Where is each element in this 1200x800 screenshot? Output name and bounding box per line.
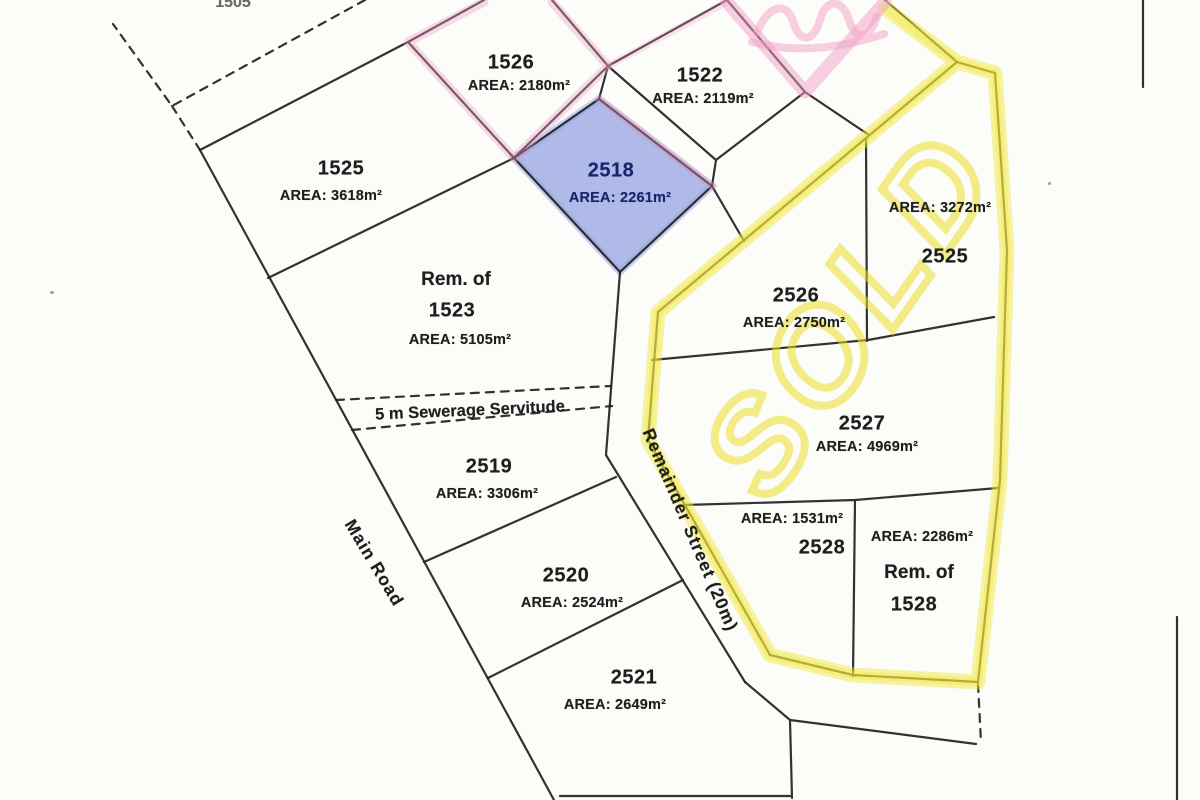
parcel-2527-area: AREA: 4969m² [816,439,918,455]
parcel-2528-area: AREA: 1531m² [741,511,843,527]
parcel-1522-number: 1522 [677,65,724,88]
parcel-1526-area: AREA: 2180m² [468,78,570,94]
parcel-1522-area: AREA: 2119m² [652,91,754,107]
parcel-2526-number: 2526 [773,285,820,308]
parcel-rem1528-prefix: Rem. of [884,562,954,584]
parcel-1526-number: 1526 [488,52,535,75]
dashed-boundary-1505 [113,0,365,150]
scan-speck [50,291,54,294]
parcel-1525-area: AREA: 3618m² [280,188,382,204]
parcel-2520-number: 2520 [543,565,590,588]
parcel-2518-number: 2518 [588,160,635,183]
cadastral-plan: SOLD 1505 1526 AREA: 2180m² 1522 AREA: 2… [0,0,1200,800]
dashed-boundary-bottom-right [978,684,981,742]
parcel-2521-number: 2521 [611,667,658,690]
parcel-2527-number: 2527 [839,413,886,436]
parcel-2525-number: 2525 [922,246,969,269]
parcel-2525-area: AREA: 3272m² [889,200,991,216]
parcel-rem1528-number: 1528 [891,594,938,617]
sheet-border-segments [1143,0,1177,800]
parcel-2521-area: AREA: 2649m² [564,697,666,713]
sold-annotation: SOLD [673,102,1027,521]
parcel-2520-area: AREA: 2524m² [521,595,623,611]
scan-speck [1048,182,1051,185]
parcel-2526-area: AREA: 2750m² [743,315,845,331]
parcel-rem1523-area: AREA: 5105m² [409,332,511,348]
parcel-2528-number: 2528 [799,537,846,560]
parcel-2519-number: 2519 [466,456,513,479]
pink-highlight-1522-edge [608,2,727,66]
parcel-2518-area: AREA: 2261m² [569,190,671,206]
plan-linework: SOLD [0,0,1200,800]
parcel-rem1523-number: 1523 [429,300,476,323]
parcel-rem1523-prefix: Rem. of [421,269,491,291]
parcel-1505-number: 1505 [215,0,251,12]
parcel-1525-number: 1525 [318,158,365,181]
parcel-rem1528-area: AREA: 2286m² [871,529,973,545]
parcel-2519-area: AREA: 3306m² [436,486,538,502]
